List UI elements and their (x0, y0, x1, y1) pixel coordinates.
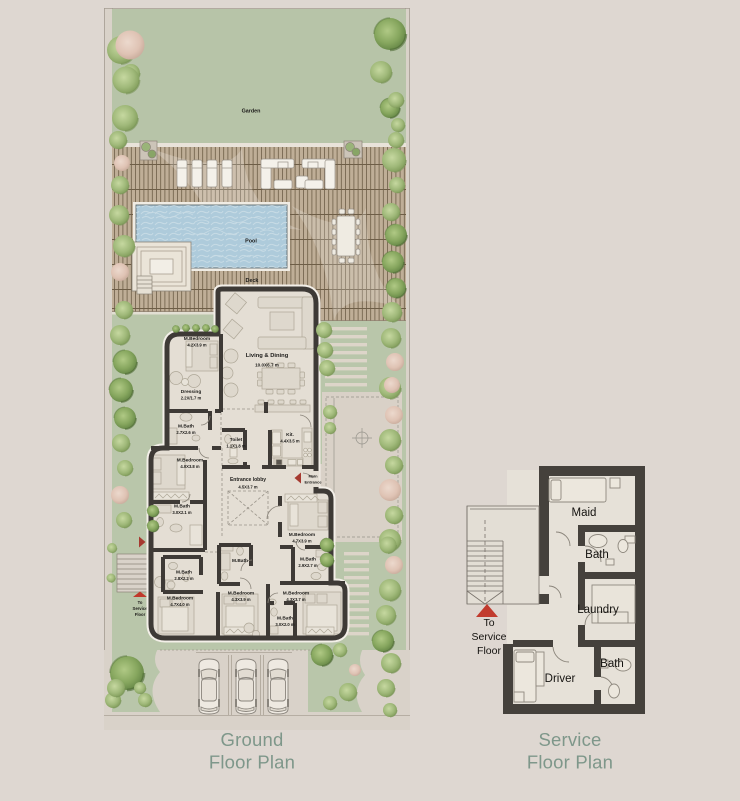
svg-text:M.Bath: M.Bath (174, 504, 190, 510)
svg-text:Kit.: Kit. (286, 432, 294, 438)
svg-text:4.0X3.8 m: 4.0X3.8 m (180, 464, 200, 469)
svg-text:To: To (138, 600, 143, 605)
svg-text:Floor Plan: Floor Plan (209, 752, 295, 773)
svg-text:4.7X3.9 m: 4.7X3.9 m (292, 539, 312, 544)
svg-text:Driver: Driver (545, 673, 576, 685)
svg-text:10.0X6.7 m: 10.0X6.7 m (255, 363, 279, 368)
svg-text:Service: Service (133, 606, 149, 611)
svg-text:M.Bedroom: M.Bedroom (283, 591, 309, 597)
svg-text:2.7X2.6 m: 2.7X2.6 m (176, 430, 196, 435)
svg-text:4.4X3.5 m: 4.4X3.5 m (280, 439, 300, 444)
svg-text:Laundry: Laundry (577, 604, 619, 616)
svg-text:Toilet: Toilet (230, 437, 243, 443)
svg-text:2.9X2.7 m: 2.9X2.7 m (298, 563, 318, 568)
svg-text:Bath: Bath (585, 549, 609, 561)
svg-text:Entrance: Entrance (304, 480, 322, 485)
svg-text:Pool: Pool (245, 239, 257, 245)
svg-text:M.Bath: M.Bath (277, 616, 293, 622)
svg-text:M.Bedroom: M.Bedroom (177, 458, 203, 464)
svg-text:4.5X3.7 m: 4.5X3.7 m (238, 485, 258, 490)
svg-text:Deck: Deck (246, 278, 259, 284)
svg-text:4.7X4.0 m: 4.7X4.0 m (170, 602, 190, 607)
svg-text:M.Bath: M.Bath (300, 557, 316, 563)
svg-text:2.8X2.2 m: 2.8X2.2 m (174, 576, 194, 581)
svg-text:Garden: Garden (242, 109, 261, 115)
svg-text:Floor: Floor (477, 645, 501, 657)
svg-text:M.Bath: M.Bath (176, 570, 192, 576)
svg-text:M.Bath: M.Bath (178, 424, 194, 430)
svg-text:M.Bedroom: M.Bedroom (184, 336, 210, 342)
svg-text:M.Bedroom: M.Bedroom (228, 591, 254, 597)
svg-text:Floor: Floor (135, 612, 146, 617)
svg-text:Main: Main (308, 474, 318, 479)
svg-text:3.0X2.0 m: 3.0X2.0 m (275, 622, 295, 627)
svg-text:Entrance lobby: Entrance lobby (230, 477, 266, 483)
svg-text:M.Bedroom: M.Bedroom (289, 532, 315, 538)
svg-text:4.3X3.9 m: 4.3X3.9 m (231, 597, 251, 602)
svg-text:To: To (483, 617, 494, 629)
svg-text:4.3X3.7 m: 4.3X3.7 m (286, 597, 306, 602)
svg-text:1.1X1.8 m: 1.1X1.8 m (226, 444, 246, 449)
svg-text:3.0X2.1 m: 3.0X2.1 m (172, 510, 192, 515)
svg-text:Maid: Maid (572, 507, 597, 519)
svg-text:Service: Service (538, 729, 601, 750)
svg-text:M.Bedroom: M.Bedroom (167, 596, 193, 602)
svg-text:2.2X/1.7 m: 2.2X/1.7 m (181, 396, 202, 401)
svg-text:Ground: Ground (221, 729, 284, 750)
svg-text:4.2X3.9 m: 4.2X3.9 m (187, 343, 207, 348)
svg-text:Bath: Bath (600, 658, 624, 670)
svg-text:M.Bath: M.Bath (232, 558, 248, 564)
svg-text:Dressing: Dressing (181, 389, 202, 395)
svg-text:Service: Service (471, 631, 506, 643)
svg-text:Floor Plan: Floor Plan (527, 752, 613, 773)
svg-text:Living & Dining: Living & Dining (246, 353, 289, 359)
